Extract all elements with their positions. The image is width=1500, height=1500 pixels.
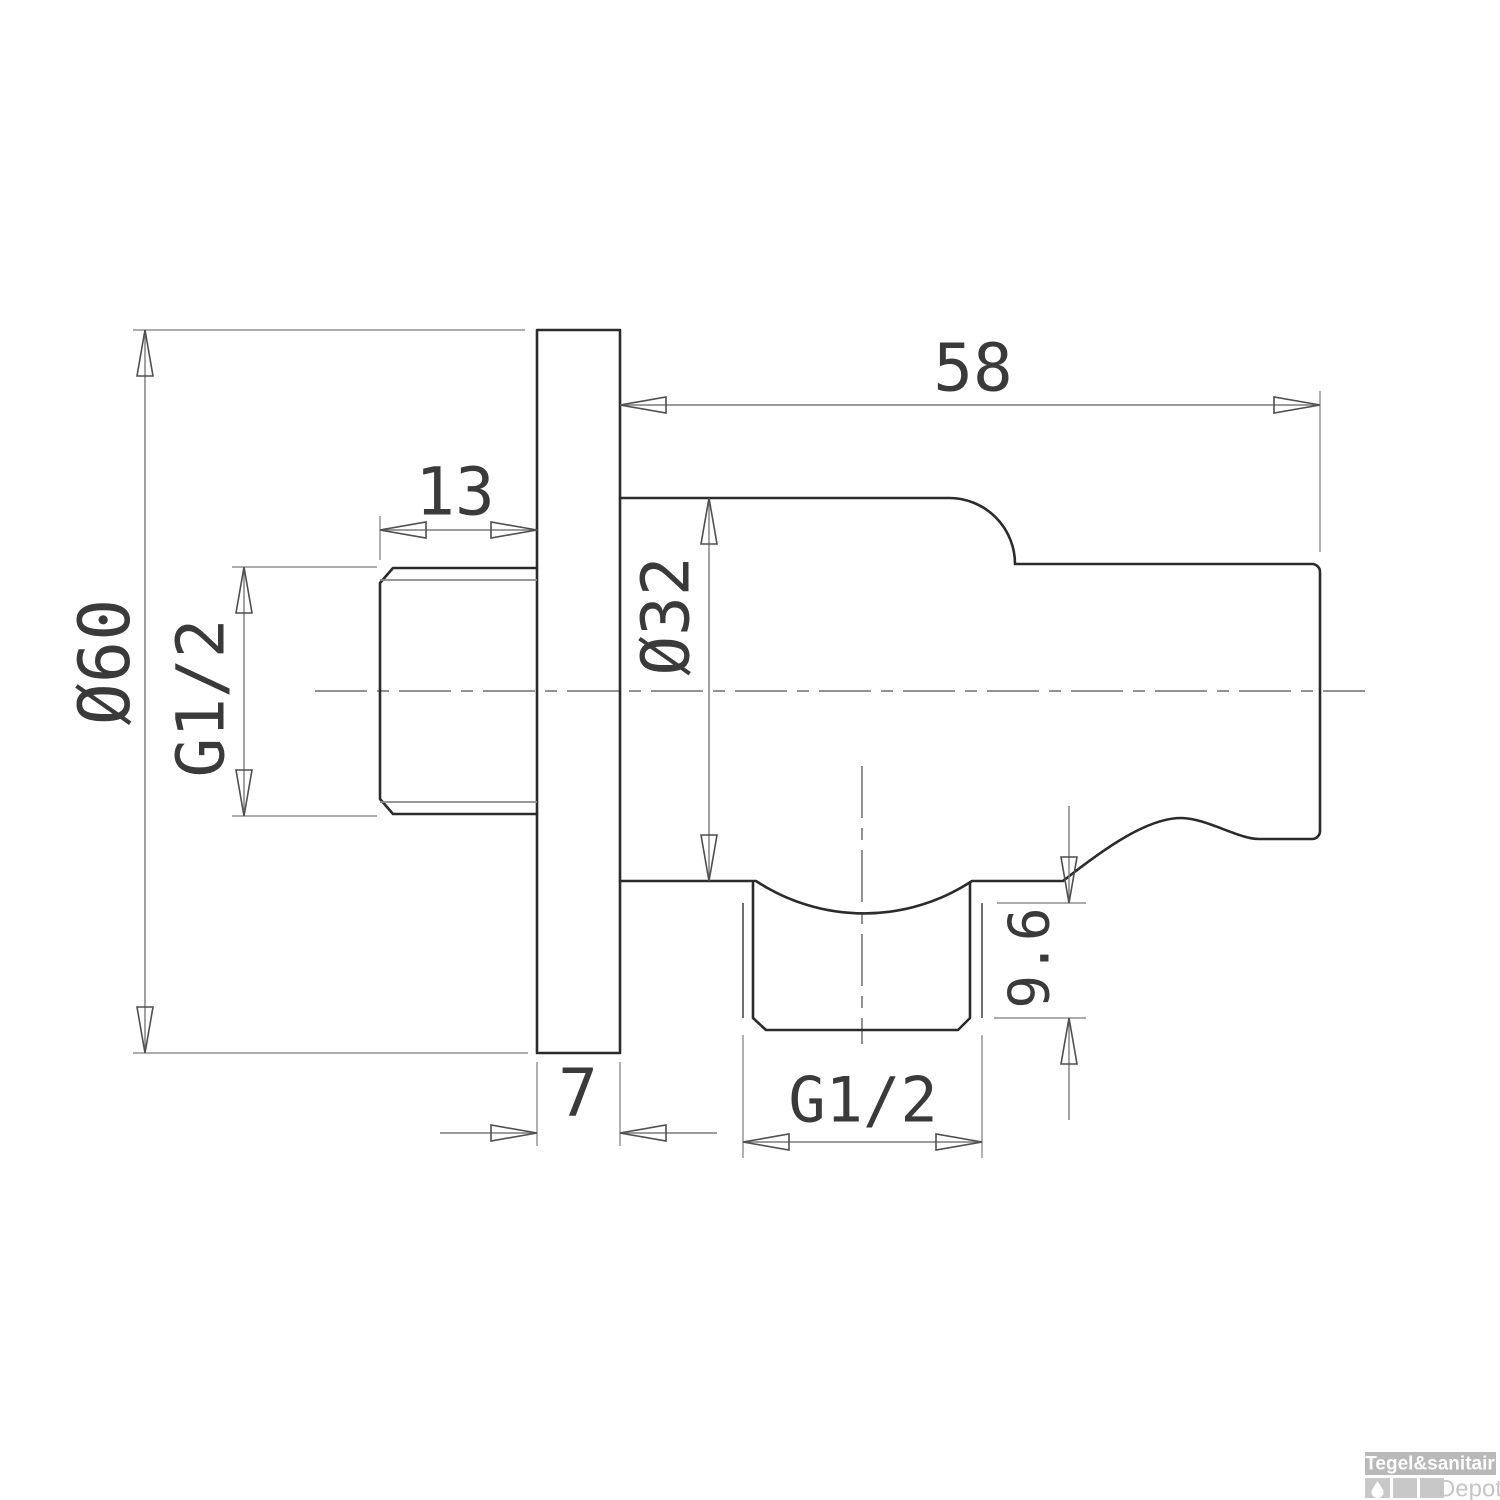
technical-drawing-canvas: Ø60 G1/2 13 58 Ø32 9 <box>0 0 1500 1500</box>
dim-label-inlet-thread: G1/2 <box>163 619 240 778</box>
dimension-flange-thickness: 7 <box>440 1055 717 1147</box>
logo-depot-text: Depot <box>1438 1476 1500 1500</box>
dimension-holder-thread-depth: 9.6 <box>994 806 1086 1120</box>
brand-logo: Tegel&sanitair Depot <box>1365 1452 1500 1500</box>
dimension-inlet-thread-length: 13 <box>380 454 537 561</box>
dim-label-flange-thickness: 7 <box>558 1055 598 1132</box>
logo-brand-text: Tegel&sanitair <box>1365 1454 1495 1475</box>
dim-label-holder-thread-depth: 9.6 <box>998 907 1063 1008</box>
dimension-flange-diameter: Ø60 <box>64 330 528 1053</box>
centerlines <box>315 691 1365 1044</box>
technical-drawing-page: Ø60 G1/2 13 58 Ø32 9 <box>0 0 1500 1500</box>
dimension-body-length: 58 <box>620 330 1320 553</box>
dimension-outlet-thread: G1/2 <box>743 1035 982 1158</box>
dim-label-inlet-thread-length: 13 <box>415 454 494 531</box>
body-profile <box>620 498 1320 913</box>
dim-label-flange-diameter: Ø60 <box>64 599 146 725</box>
dim-label-body-diameter: Ø32 <box>628 556 705 675</box>
dim-label-outlet-thread: G1/2 <box>788 1064 937 1137</box>
dim-label-body-length: 58 <box>933 330 1012 407</box>
logo-square-2 <box>1393 1478 1417 1498</box>
dimension-body-diameter: Ø32 <box>628 498 718 881</box>
